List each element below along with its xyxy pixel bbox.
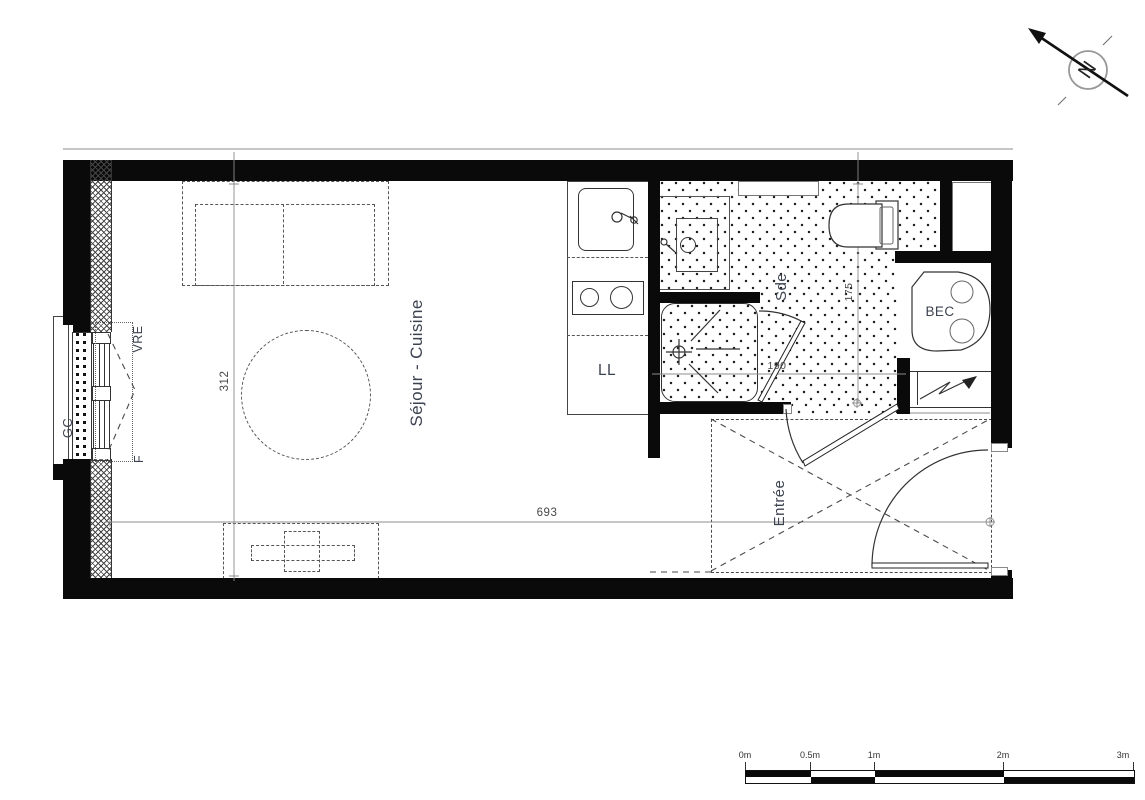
dimension-693: 693 bbox=[522, 506, 572, 519]
scale-label-2m: 2m bbox=[983, 750, 1023, 760]
entry-zone-diagonals bbox=[711, 419, 990, 571]
linework-layer bbox=[0, 0, 1145, 800]
scale-label-0m: 0m bbox=[725, 750, 765, 760]
north-arrowhead bbox=[1028, 28, 1046, 44]
dimension-175: 175 bbox=[843, 274, 855, 310]
shower-head-icon bbox=[666, 310, 740, 393]
bathroom-door-arc bbox=[786, 409, 803, 463]
scale-tick bbox=[1133, 762, 1134, 770]
basin-tap-icon bbox=[661, 239, 675, 252]
room-label-living: Séjour - Cuisine bbox=[406, 278, 428, 448]
shower-door-arc bbox=[759, 311, 803, 322]
scale-tick bbox=[810, 762, 811, 770]
dimension-312: 312 bbox=[218, 361, 232, 401]
scale-segment bbox=[746, 771, 811, 777]
label-window: F bbox=[132, 450, 146, 468]
label-washing-machine: LL bbox=[587, 362, 627, 380]
room-label-entry: Entrée bbox=[770, 473, 788, 533]
scale-segment bbox=[875, 771, 1004, 777]
scale-label-05m: 0.5m bbox=[790, 750, 830, 760]
scale-label-1m: 1m bbox=[854, 750, 894, 760]
label-roller-shutter: VRE bbox=[131, 321, 145, 357]
scale-tick bbox=[1003, 762, 1004, 770]
scale-tick bbox=[745, 762, 746, 770]
room-label-bathroom: Sde bbox=[772, 267, 790, 307]
floor-plan: Séjour - Cuisine Sde Entrée BEC LL GC VR… bbox=[0, 0, 1145, 800]
sink-tap-icon bbox=[612, 212, 638, 224]
entrance-door-arc bbox=[872, 450, 988, 566]
toilet bbox=[829, 201, 898, 249]
label-guardrail: GC bbox=[59, 413, 75, 443]
dimension-190: 190 bbox=[752, 360, 802, 372]
scale-label-3m: 3m bbox=[1105, 750, 1141, 760]
radiator-arrow-icon bbox=[920, 376, 977, 399]
bathroom-door-leaf bbox=[803, 404, 899, 466]
label-water-heater: BEC bbox=[915, 303, 965, 319]
scale-tick bbox=[874, 762, 875, 770]
entrance-door-leaf bbox=[872, 563, 988, 568]
scale-segment bbox=[811, 777, 875, 783]
scale-bar bbox=[745, 770, 1135, 784]
scale-segment bbox=[1004, 777, 1134, 783]
